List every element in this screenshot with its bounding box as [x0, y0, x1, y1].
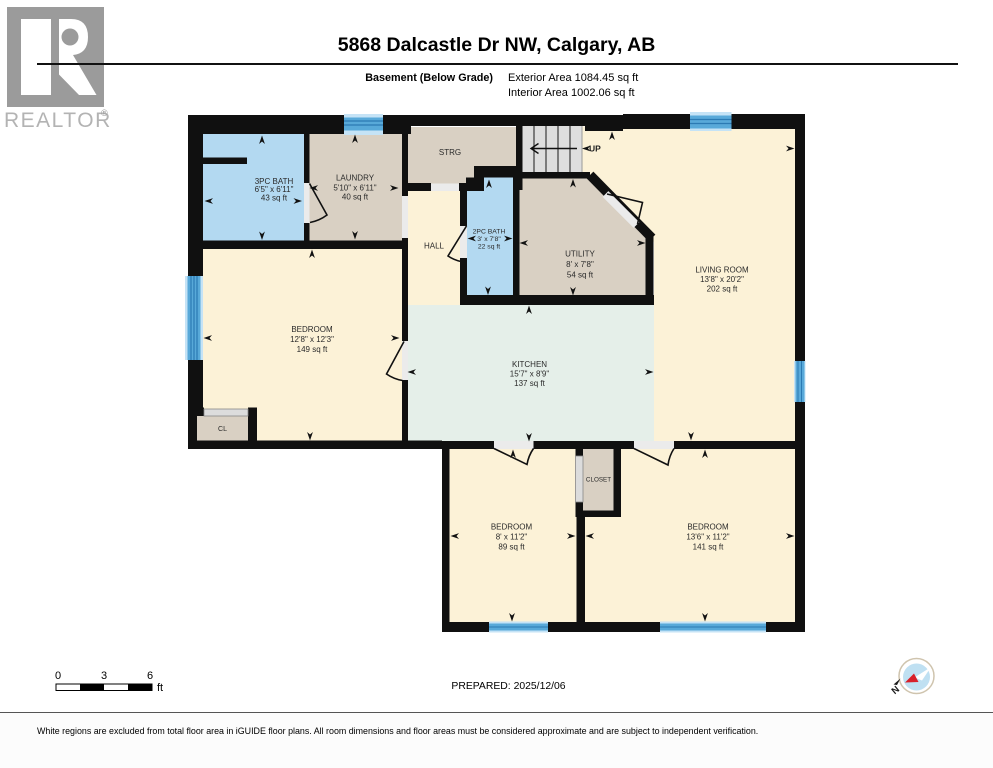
- svg-text:BEDROOM: BEDROOM: [491, 523, 533, 532]
- svg-text:3' x 7'8": 3' x 7'8": [477, 236, 501, 243]
- svg-text:22 sq ft: 22 sq ft: [478, 244, 500, 251]
- svg-text:54 sq ft: 54 sq ft: [567, 271, 594, 280]
- svg-text:LAUNDRY: LAUNDRY: [336, 173, 375, 182]
- svg-text:LIVING ROOM: LIVING ROOM: [695, 266, 749, 275]
- svg-text:43 sq ft: 43 sq ft: [261, 194, 288, 203]
- svg-text:13'8" x 20'2": 13'8" x 20'2": [700, 275, 744, 284]
- svg-text:137 sq ft: 137 sq ft: [514, 379, 545, 388]
- svg-text:STRG: STRG: [439, 148, 461, 157]
- svg-text:CL: CL: [218, 426, 227, 433]
- svg-text:6'5" x 6'11": 6'5" x 6'11": [255, 185, 294, 194]
- svg-text:8' x 7'8": 8' x 7'8": [566, 260, 594, 269]
- svg-text:BEDROOM: BEDROOM: [291, 325, 333, 334]
- svg-text:202 sq ft: 202 sq ft: [707, 285, 738, 294]
- svg-text:141 sq ft: 141 sq ft: [693, 543, 724, 552]
- svg-text:40 sq ft: 40 sq ft: [342, 193, 369, 202]
- svg-text:UP: UP: [589, 144, 601, 154]
- svg-text:HALL: HALL: [424, 242, 445, 251]
- svg-text:UTILITY: UTILITY: [565, 250, 595, 259]
- svg-text:5'10" x 6'11": 5'10" x 6'11": [333, 184, 376, 193]
- svg-text:2PC BATH: 2PC BATH: [473, 229, 506, 236]
- svg-text:KITCHEN: KITCHEN: [512, 360, 547, 369]
- svg-text:8' x 11'2": 8' x 11'2": [496, 533, 528, 542]
- svg-text:CLOSET: CLOSET: [586, 477, 611, 484]
- svg-text:N: N: [890, 684, 902, 697]
- svg-text:89 sq ft: 89 sq ft: [498, 543, 525, 552]
- svg-text:12'8" x 12'3": 12'8" x 12'3": [290, 335, 334, 344]
- svg-text:BEDROOM: BEDROOM: [687, 523, 729, 532]
- svg-text:149 sq ft: 149 sq ft: [297, 345, 328, 354]
- svg-text:13'6" x 11'2": 13'6" x 11'2": [686, 533, 729, 542]
- svg-text:15'7" x 8'9": 15'7" x 8'9": [510, 370, 550, 379]
